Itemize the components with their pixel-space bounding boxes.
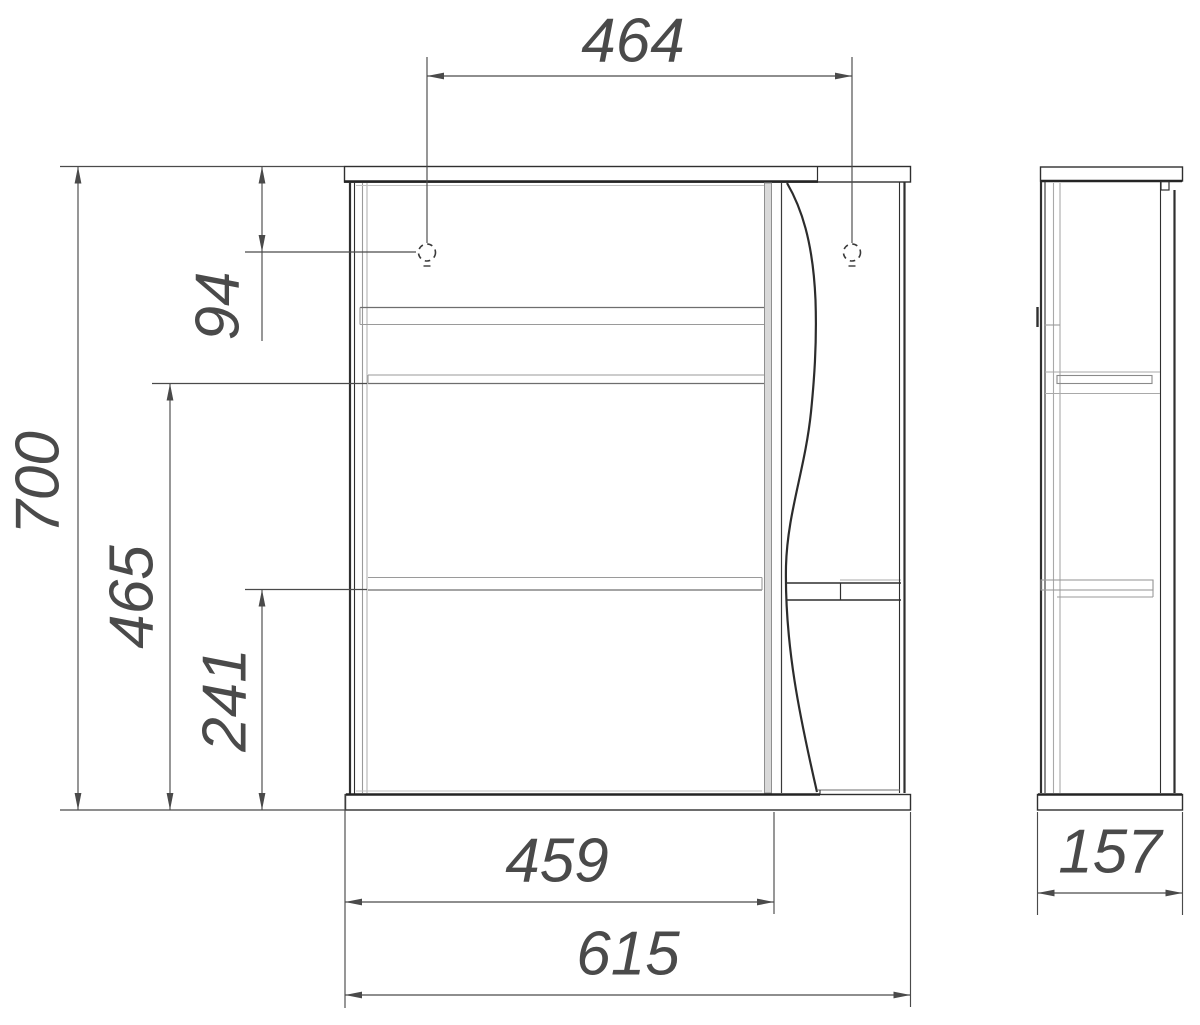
front-cornice	[344, 167, 911, 183]
dimension-hole-spacing-top: 464	[427, 7, 852, 243]
dimension-depth: 157	[1038, 812, 1183, 915]
cap-outline	[1041, 167, 1183, 181]
bottom-outline	[1038, 795, 1183, 811]
mirror-door-edge	[765, 183, 772, 793]
mounting-hole-left	[419, 244, 436, 266]
mirror-door-shelf-lines	[356, 186, 764, 792]
front-right-panel	[900, 182, 905, 793]
dimension-label: 157	[1058, 818, 1164, 887]
mounting-hole-right	[844, 244, 861, 266]
dimension-overall-width: 615	[345, 812, 911, 1007]
dimension-label: 241	[191, 648, 260, 752]
mounting-hole-icon	[844, 244, 861, 261]
side-bottom-board	[1038, 795, 1183, 811]
dimension-label: 700	[4, 431, 73, 534]
wave-edge-curve	[786, 183, 817, 792]
mounting-hole-icon	[419, 244, 436, 261]
front-bottom-board	[346, 790, 911, 810]
front-view	[344, 167, 911, 811]
dimension-overall-height: 700	[4, 167, 345, 811]
dimension-label: 94	[184, 272, 253, 341]
side-shelves	[1041, 372, 1160, 597]
dimension-label: 464	[581, 7, 684, 76]
dimension-label: 615	[576, 920, 680, 989]
front-left-panel	[350, 182, 367, 794]
shelf-edge	[1057, 376, 1152, 384]
dimension-label: 465	[98, 545, 167, 649]
side-top-cap	[1041, 167, 1183, 190]
dimension-holes-from-top: 94	[184, 167, 416, 342]
cornice-outline	[345, 167, 911, 183]
bottom-outline	[346, 795, 911, 811]
dimension-door-width: 459	[345, 794, 774, 1008]
dimension-lower-shelf: 241	[191, 590, 367, 811]
side-body	[1038, 182, 1175, 794]
shelf-edge	[1041, 580, 1153, 590]
cabinet-technical-drawing: 464 94 700 465 241	[0, 0, 1200, 1025]
side-section-shelf	[786, 580, 901, 600]
cap-back-cleat	[1161, 182, 1169, 191]
drawing-sheet: 464 94 700 465 241	[0, 0, 1200, 1025]
dimension-label: 459	[505, 827, 608, 896]
dimensions: 464 94 700 465 241	[4, 7, 1183, 1008]
side-view	[1038, 167, 1183, 810]
